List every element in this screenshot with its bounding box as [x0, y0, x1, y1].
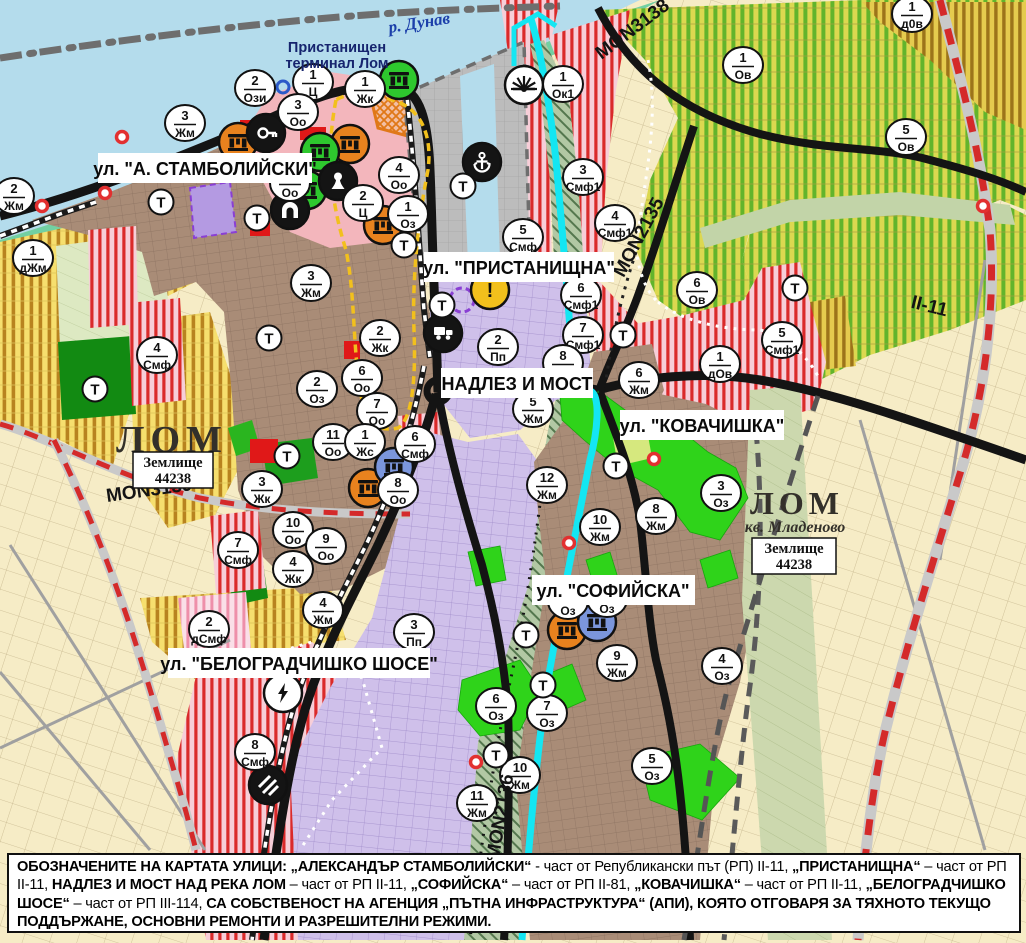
svg-text:1: 1 [559, 69, 566, 84]
svg-text:1: 1 [739, 50, 746, 65]
svg-text:Жм: Жм [589, 530, 610, 544]
svg-text:Т: Т [437, 298, 446, 315]
zone-marker: 2Пп [478, 329, 518, 365]
svg-text:Т: Т [282, 449, 291, 466]
svg-text:3: 3 [579, 162, 586, 177]
svg-text:1: 1 [361, 74, 368, 89]
freight-station-icon [424, 314, 462, 352]
zone-marker: 1дЖм [13, 240, 53, 276]
zone-marker: 12Жм [527, 467, 567, 503]
zone-marker: 6Оо [342, 360, 382, 396]
svg-text:8: 8 [394, 475, 401, 490]
zone-marker: 1дОв [700, 346, 740, 382]
svg-text:2: 2 [313, 374, 320, 389]
svg-text:7: 7 [234, 535, 241, 550]
svg-text:Жм: Жм [312, 613, 333, 627]
legend-text-run: НАДЛЕЗ И МОСТ НАД РЕКА ЛОМ [52, 877, 286, 893]
svg-text:3: 3 [294, 97, 301, 112]
svg-text:Оз: Оз [309, 392, 324, 406]
transport-t-marker: Т [83, 377, 108, 402]
svg-text:Жм: Жм [466, 806, 487, 820]
zone-marker: 6Ов [677, 272, 717, 308]
zone-marker: 1Жс [345, 424, 385, 460]
svg-text:11: 11 [326, 427, 340, 442]
svg-text:Смф: Смф [224, 553, 252, 567]
svg-text:12: 12 [540, 470, 554, 485]
svg-text:6: 6 [635, 365, 642, 380]
poi-dot [978, 201, 989, 212]
svg-text:Жм: Жм [645, 519, 666, 533]
svg-text:Жм: Жм [522, 412, 543, 426]
map-viewer: ! 2Жм1дЖм3Жм2Ози1Ц3Оо1Жк4Оо2Ц1ОзОо3Жм2Жк… [0, 0, 1026, 943]
svg-text:Оо: Оо [285, 533, 302, 547]
svg-text:Жк: Жк [253, 492, 272, 506]
svg-text:Жм: Жм [536, 488, 557, 502]
street-label-stamboliyski: ул. "А. СТАМБОЛИЙСКИ" [93, 153, 317, 183]
zone-marker: 8Жм [636, 498, 676, 534]
svg-text:4: 4 [395, 160, 403, 175]
landplot-label: Землище [143, 455, 203, 471]
zone-marker: 2Жк [360, 320, 400, 356]
svg-text:6: 6 [492, 691, 499, 706]
landplot-number: 44238 [155, 471, 191, 487]
zone-marker: 4Оз [702, 648, 742, 684]
zone-marker: 2Оз [297, 371, 337, 407]
street-label-nadlez: НАДЛЕЗ И МОСТ [441, 368, 593, 398]
zone-marker: 10Жм [580, 509, 620, 545]
zone-marker: 5Смф1 [762, 322, 802, 358]
svg-text:6: 6 [358, 363, 365, 378]
transport-t-marker: Т [275, 444, 300, 469]
svg-text:Оз: Оз [400, 217, 415, 231]
svg-text:6: 6 [577, 280, 584, 295]
svg-text:дСмф: дСмф [191, 632, 227, 646]
svg-text:Смф: Смф [241, 755, 269, 769]
transport-t-marker: Т [430, 293, 455, 318]
zone-marker: 1д0в [892, 0, 932, 32]
transport-t-marker: Т [392, 233, 417, 258]
svg-text:Т: Т [90, 382, 99, 399]
poi-dot [37, 201, 48, 212]
transport-t-marker: Т [783, 276, 808, 301]
svg-text:Жм: Жм [3, 199, 24, 213]
zone-marker: 9Оо [306, 528, 346, 564]
svg-text:6: 6 [411, 429, 418, 444]
poi-dot [100, 188, 111, 199]
svg-text:8: 8 [559, 348, 566, 363]
zone-marker: 7Смф [218, 532, 258, 568]
legend-text-run: – част от РП II-81, [508, 877, 634, 893]
svg-text:Ов: Ов [898, 140, 915, 154]
svg-text:Оз: Оз [488, 709, 503, 723]
zone-marker: 3Жм [165, 105, 205, 141]
zone-marker: 4Жм [303, 592, 343, 628]
svg-text:4: 4 [718, 651, 726, 666]
svg-text:НАДЛЕЗ И МОСТ: НАДЛЕЗ И МОСТ [442, 374, 593, 394]
svg-text:Оз: Оз [539, 716, 554, 730]
zone-marker: 5Ов [886, 119, 926, 155]
zone-marker: 1Ов [723, 47, 763, 83]
svg-text:Оо: Оо [290, 115, 307, 129]
svg-text:10: 10 [286, 515, 300, 530]
svg-text:11: 11 [470, 788, 484, 803]
zone-marker: 6Оз [476, 688, 516, 724]
svg-text:6: 6 [693, 275, 700, 290]
svg-text:Жк: Жк [284, 572, 303, 586]
zone-marker: 8Оо [378, 472, 418, 508]
svg-text:2: 2 [205, 614, 212, 629]
svg-text:1: 1 [404, 199, 411, 214]
svg-text:10: 10 [593, 512, 607, 527]
svg-text:ул. "А. СТАМБОЛИЙСКИ": ул. "А. СТАМБОЛИЙСКИ" [93, 158, 317, 179]
svg-text:4: 4 [153, 340, 161, 355]
svg-text:дОв: дОв [708, 367, 732, 381]
svg-text:Оо: Оо [390, 493, 407, 507]
svg-text:Т: Т [252, 211, 261, 228]
svg-text:Смф: Смф [143, 358, 171, 372]
port-terminal-label: терминал Лом [285, 56, 388, 72]
rail-crossing-icon [249, 766, 287, 804]
transport-t-marker: Т [484, 743, 509, 768]
svg-text:3: 3 [717, 478, 724, 493]
svg-text:8: 8 [251, 737, 258, 752]
svg-text:Смф1: Смф1 [765, 343, 800, 357]
svg-text:Т: Т [399, 238, 408, 255]
svg-text:Оо: Оо [325, 445, 342, 459]
zone-marker: 4Оо [379, 157, 419, 193]
svg-text:Т: Т [618, 328, 627, 345]
landplot-box-east: Землище 44238 [752, 538, 836, 574]
legend-text-run: „СОФИЙСКА“ [411, 877, 509, 893]
svg-text:Оо: Оо [391, 178, 408, 192]
svg-text:2: 2 [494, 332, 501, 347]
legend-text-run: – част от РП II-11, [741, 877, 866, 893]
svg-text:9: 9 [322, 531, 329, 546]
svg-text:Смф1: Смф1 [564, 298, 599, 312]
zoning-map-canvas[interactable]: ! 2Жм1дЖм3Жм2Ози1Ц3Оо1Жк4Оо2Ц1ОзОо3Жм2Жк… [0, 0, 1026, 943]
zone-marker: 3Жк [242, 471, 282, 507]
zone-marker: 1Жк [345, 71, 385, 107]
svg-text:7: 7 [543, 698, 550, 713]
svg-text:Пп: Пп [406, 635, 422, 649]
svg-text:3: 3 [307, 268, 314, 283]
transport-t-marker: Т [514, 623, 539, 648]
svg-text:4: 4 [319, 595, 327, 610]
svg-text:5: 5 [778, 325, 785, 340]
district-name: кв. Младеново [745, 519, 846, 536]
svg-text:Т: Т [521, 628, 530, 645]
svg-text:ул. "ПРИСТАНИЩНА": ул. "ПРИСТАНИЩНА" [423, 258, 615, 278]
transport-t-marker: Т [257, 326, 282, 351]
svg-text:Оз: Оз [644, 769, 659, 783]
svg-text:Жм: Жм [606, 666, 627, 680]
svg-text:Оз: Оз [560, 604, 575, 618]
zone-marker: 9Жм [597, 645, 637, 681]
svg-text:1: 1 [29, 243, 36, 258]
poi-dot [471, 757, 482, 768]
svg-text:Ц: Ц [359, 206, 368, 220]
svg-text:Жк: Жк [356, 92, 375, 106]
sunrise-icon [505, 66, 543, 104]
transport-t-marker: Т [604, 454, 629, 479]
transport-t-marker: Т [611, 323, 636, 348]
svg-text:Оз: Оз [714, 669, 729, 683]
svg-text:ул. "СОФИЙСКА": ул. "СОФИЙСКА" [536, 580, 689, 601]
zone-marker: 7Оз [527, 695, 567, 731]
zone-marker: 2Ози [235, 70, 275, 106]
svg-text:Пп: Пп [490, 350, 506, 364]
svg-text:1: 1 [361, 427, 368, 442]
street-label-belogradchishko: ул. "БЕЛОГРАДЧИШКО ШОСЕ" [160, 648, 438, 678]
legend-text-run: ОБОЗНАЧЕНИТЕ НА КАРТАТА УЛИЦИ: „АЛЕКСАНД… [17, 859, 531, 875]
zone-marker: 8Смф [235, 734, 275, 770]
svg-text:Ов: Ов [735, 68, 752, 82]
zone-marker: 2Жм [0, 178, 34, 214]
landplot-label: Землище [764, 541, 824, 557]
svg-text:2: 2 [376, 323, 383, 338]
legend-text-run: – част от РП II-11, [286, 877, 411, 893]
zone-marker: 2дСмф [189, 611, 229, 647]
svg-text:3: 3 [410, 617, 417, 632]
zone-marker: 5Оз [632, 748, 672, 784]
transport-t-marker: Т [245, 206, 270, 231]
svg-text:4: 4 [611, 208, 619, 223]
svg-text:10: 10 [513, 760, 527, 775]
svg-text:9: 9 [613, 648, 620, 663]
legend-text-run: – част от РП III-114, [70, 896, 207, 912]
svg-text:дЖм: дЖм [19, 261, 46, 275]
svg-text:Оо: Оо [282, 186, 299, 200]
map-legend-note: ОБОЗНАЧЕНИТЕ НА КАРТАТА УЛИЦИ: „АЛЕКСАНД… [7, 853, 1021, 933]
svg-text:2: 2 [251, 73, 258, 88]
svg-text:Оз: Оз [713, 496, 728, 510]
zone-marker: 5Смф [503, 219, 543, 255]
zone-marker: 3Пп [394, 614, 434, 650]
zone-marker: 3Смф1 [563, 159, 603, 195]
zone-marker: 4Жк [273, 551, 313, 587]
zone-marker: 6Смф1 [561, 277, 601, 313]
transport-t-marker: Т [531, 673, 556, 698]
port-terminal-label: Пристанищен [288, 40, 386, 56]
svg-text:Т: Т [538, 678, 547, 695]
svg-text:4: 4 [289, 554, 297, 569]
landplot-number: 44238 [776, 557, 812, 573]
svg-text:Т: Т [156, 195, 165, 212]
svg-text:Жм: Жм [174, 126, 195, 140]
svg-text:7: 7 [579, 320, 586, 335]
transport-t-marker: Т [149, 190, 174, 215]
zone-marker: 3Оо [278, 94, 318, 130]
svg-text:Ов: Ов [689, 293, 706, 307]
street-label-pristanishtna: ул. "ПРИСТАНИЩНА" [423, 252, 615, 282]
svg-text:Смф: Смф [401, 447, 429, 461]
violet-zone [190, 182, 236, 238]
svg-text:д0в: д0в [901, 17, 923, 31]
legend-text-run: „ПРИСТАНИЩНА“ [792, 859, 920, 875]
svg-text:ул. "КОВАЧИШКА": ул. "КОВАЧИШКА" [620, 416, 785, 436]
zone-marker: 3Оз [701, 475, 741, 511]
svg-text:7: 7 [373, 396, 380, 411]
svg-text:Оо: Оо [318, 549, 335, 563]
power-substation-icon [264, 674, 302, 712]
svg-text:3: 3 [258, 474, 265, 489]
street-label-kovachishka: ул. "КОВАЧИШКА" [620, 410, 785, 440]
zone-marker: 6Смф [395, 426, 435, 462]
svg-text:Оо: Оо [354, 381, 371, 395]
svg-text:Т: Т [790, 281, 799, 298]
svg-text:Жм: Жм [300, 286, 321, 300]
zone-marker: 1Ок1 [543, 66, 583, 102]
zone-marker: 4Смф [137, 337, 177, 373]
svg-text:8: 8 [652, 501, 659, 516]
svg-text:Жм: Жм [628, 383, 649, 397]
svg-text:Жк: Жк [371, 341, 390, 355]
landplot-box-west: Землище 44238 [133, 452, 213, 488]
zone-marker: 3Жм [291, 265, 331, 301]
zone-marker: 6Жм [619, 362, 659, 398]
svg-text:Смф1: Смф1 [566, 180, 601, 194]
svg-text:Т: Т [491, 748, 500, 765]
svg-text:2: 2 [10, 181, 17, 196]
transport-t-marker: Т [451, 174, 476, 199]
zone-marker: 1Оз [388, 196, 428, 232]
svg-text:Т: Т [458, 179, 467, 196]
svg-text:!: ! [487, 280, 494, 302]
svg-text:Т: Т [264, 331, 273, 348]
svg-text:Ози: Ози [244, 91, 267, 105]
svg-text:1: 1 [908, 0, 915, 14]
svg-text:Ок1: Ок1 [552, 87, 574, 101]
svg-text:Смф: Смф [509, 240, 537, 254]
svg-text:3: 3 [181, 108, 188, 123]
town-name-east: ЛОМ [750, 485, 844, 521]
svg-text:Жс: Жс [355, 445, 374, 459]
svg-text:1: 1 [716, 349, 723, 364]
legend-text-run: „КОВАЧИШКА“ [634, 877, 741, 893]
poi-dot [649, 454, 660, 465]
svg-text:ул. "БЕЛОГРАДЧИШКО ШОСЕ": ул. "БЕЛОГРАДЧИШКО ШОСЕ" [160, 654, 438, 674]
svg-text:2: 2 [359, 188, 366, 203]
svg-text:5: 5 [519, 222, 526, 237]
svg-text:5: 5 [648, 751, 655, 766]
svg-text:5: 5 [902, 122, 909, 137]
poi-dot [117, 132, 128, 143]
poi-dot [564, 538, 575, 549]
svg-text:Т: Т [611, 459, 620, 476]
zone-marker: 2Ц [343, 185, 383, 221]
street-label-sofiyska: ул. "СОФИЙСКА" [532, 575, 695, 605]
legend-text-run: - част от Републикански път (РП) II-11, [531, 859, 792, 875]
